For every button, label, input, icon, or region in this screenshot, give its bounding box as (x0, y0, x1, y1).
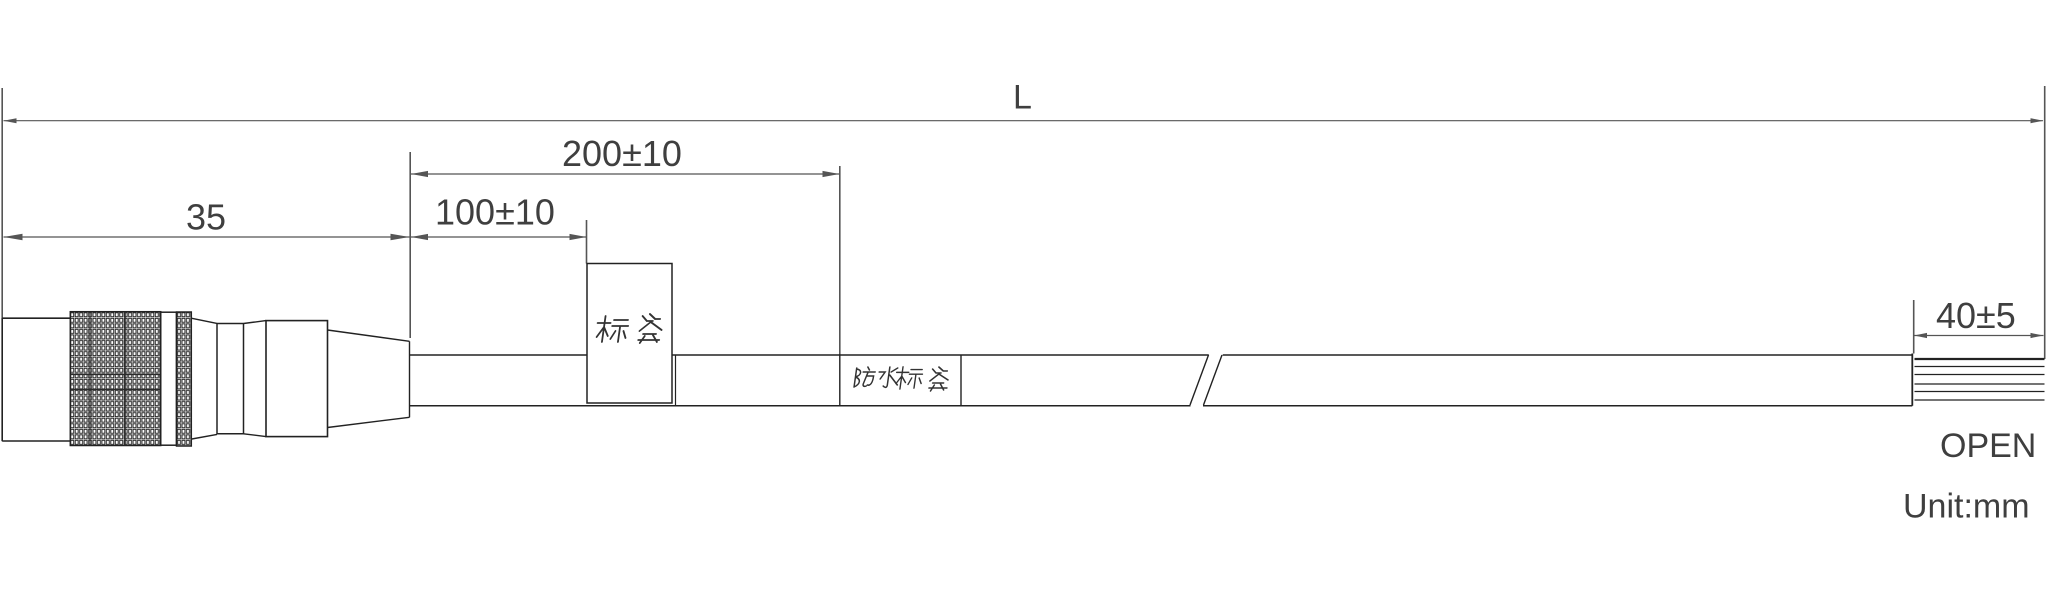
svg-text:OPEN: OPEN (1940, 427, 2036, 465)
svg-text:Unit:mm: Unit:mm (1903, 488, 2030, 526)
svg-text:40±5: 40±5 (1936, 295, 2016, 336)
svg-text:100±10: 100±10 (435, 192, 555, 233)
svg-text:L: L (1013, 79, 1032, 117)
svg-text:35: 35 (186, 197, 226, 238)
svg-text:200±10: 200±10 (562, 133, 682, 174)
